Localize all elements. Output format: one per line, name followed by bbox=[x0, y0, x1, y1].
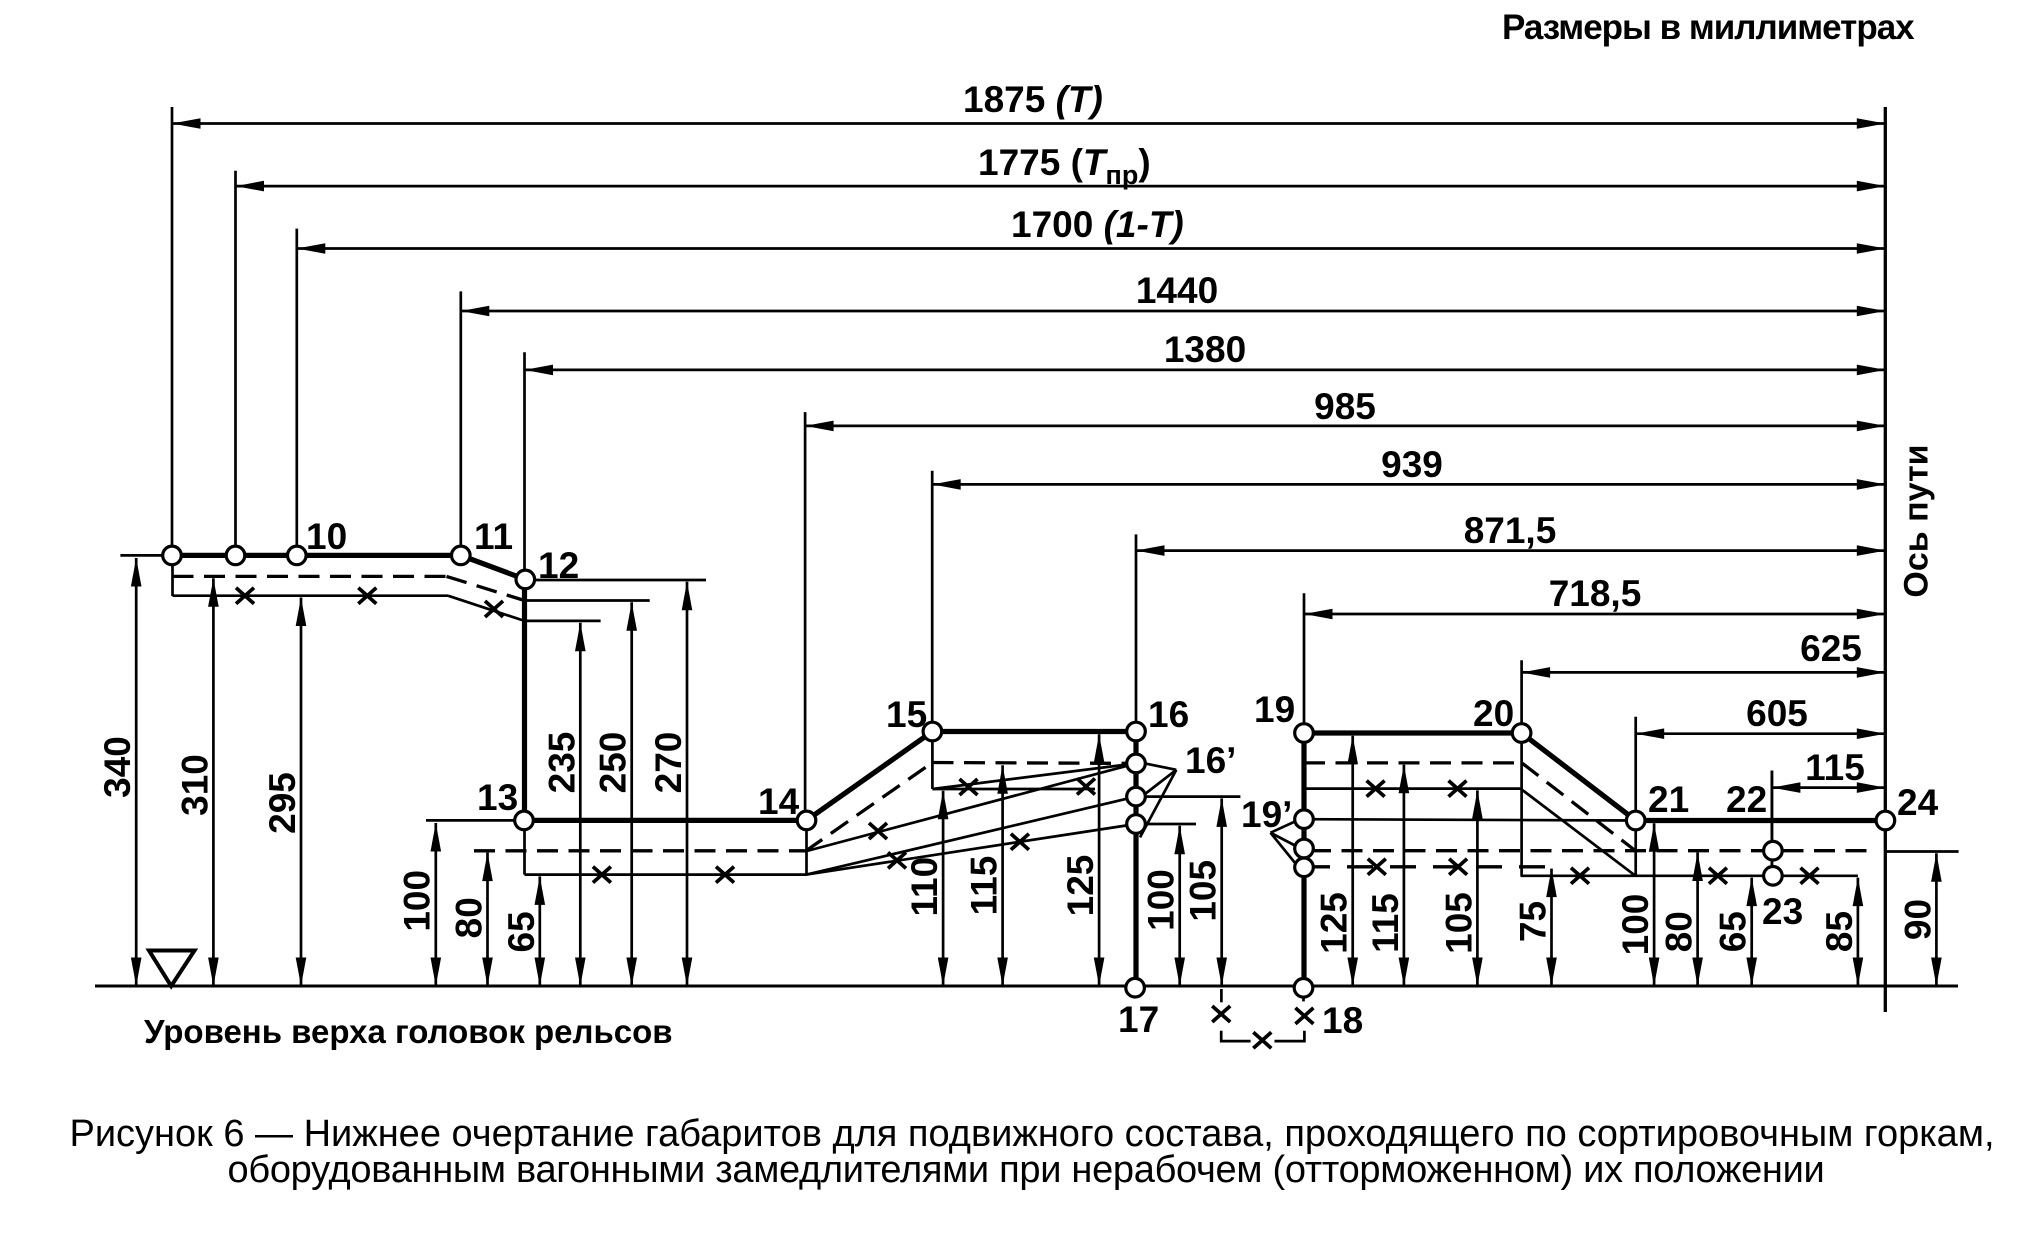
svg-text:110: 110 bbox=[904, 857, 945, 917]
svg-text:75: 75 bbox=[1513, 901, 1554, 942]
svg-text:115: 115 bbox=[1805, 747, 1865, 788]
svg-text:14: 14 bbox=[758, 781, 800, 822]
svg-text:939: 939 bbox=[1381, 444, 1443, 485]
svg-text:100: 100 bbox=[1615, 894, 1656, 956]
svg-text:16’: 16’ bbox=[1185, 740, 1236, 781]
svg-text:Ось пути: Ось пути bbox=[1898, 444, 1936, 597]
svg-text:125: 125 bbox=[1060, 855, 1101, 917]
svg-text:24: 24 bbox=[1897, 782, 1939, 823]
svg-text:19: 19 bbox=[1254, 689, 1295, 730]
svg-text:Размеры в миллиметрах: Размеры в миллиметрах bbox=[1502, 8, 1915, 47]
svg-text:115: 115 bbox=[1365, 893, 1406, 953]
svg-text:605: 605 bbox=[1746, 693, 1808, 734]
svg-text:20: 20 bbox=[1473, 693, 1514, 734]
svg-text:15: 15 bbox=[886, 694, 927, 735]
svg-text:310: 310 bbox=[174, 754, 215, 816]
svg-text:340: 340 bbox=[97, 736, 138, 798]
svg-text:80: 80 bbox=[1659, 911, 1700, 952]
svg-text:16: 16 bbox=[1148, 694, 1189, 735]
svg-text:21: 21 bbox=[1648, 779, 1689, 820]
svg-text:105: 105 bbox=[1438, 892, 1479, 954]
svg-text:19’: 19’ bbox=[1241, 794, 1292, 835]
svg-text:295: 295 bbox=[262, 772, 303, 834]
svg-text:85: 85 bbox=[1819, 911, 1860, 952]
svg-text:13: 13 bbox=[477, 777, 518, 818]
svg-text:125: 125 bbox=[1314, 892, 1355, 954]
svg-text:250: 250 bbox=[593, 732, 634, 794]
svg-text:65: 65 bbox=[501, 911, 542, 952]
svg-text:718,5: 718,5 bbox=[1549, 573, 1642, 614]
svg-text:23: 23 bbox=[1762, 891, 1803, 932]
svg-text:115: 115 bbox=[964, 856, 1005, 916]
svg-text:100: 100 bbox=[1141, 869, 1182, 931]
svg-text:10: 10 bbox=[306, 516, 347, 557]
svg-text:оборудованным вагонными замедл: оборудованным вагонными замедлителями пр… bbox=[228, 1149, 1825, 1191]
svg-text:985: 985 bbox=[1314, 386, 1376, 427]
svg-text:22: 22 bbox=[1726, 779, 1767, 820]
svg-text:80: 80 bbox=[449, 897, 490, 938]
svg-text:Уровень верха головок рельсов: Уровень верха головок рельсов bbox=[144, 1013, 673, 1050]
svg-text:1875 (Т): 1875 (Т) bbox=[963, 79, 1103, 120]
svg-text:17: 17 bbox=[1118, 999, 1159, 1040]
svg-text:12: 12 bbox=[538, 545, 579, 586]
svg-text:11: 11 bbox=[474, 516, 513, 557]
svg-text:1440: 1440 bbox=[1136, 270, 1218, 311]
svg-text:105: 105 bbox=[1183, 860, 1224, 922]
svg-text:625: 625 bbox=[1800, 628, 1862, 669]
svg-text:90: 90 bbox=[1897, 899, 1938, 940]
svg-text:65: 65 bbox=[1713, 911, 1754, 952]
svg-text:100: 100 bbox=[397, 870, 438, 932]
svg-text:1700 (1-Т): 1700 (1-Т) bbox=[1011, 204, 1184, 245]
svg-text:871,5: 871,5 bbox=[1464, 510, 1557, 551]
svg-text:18: 18 bbox=[1322, 1000, 1363, 1041]
svg-text:1380: 1380 bbox=[1164, 329, 1246, 370]
svg-text:235: 235 bbox=[541, 732, 582, 794]
svg-text:270: 270 bbox=[648, 732, 689, 794]
